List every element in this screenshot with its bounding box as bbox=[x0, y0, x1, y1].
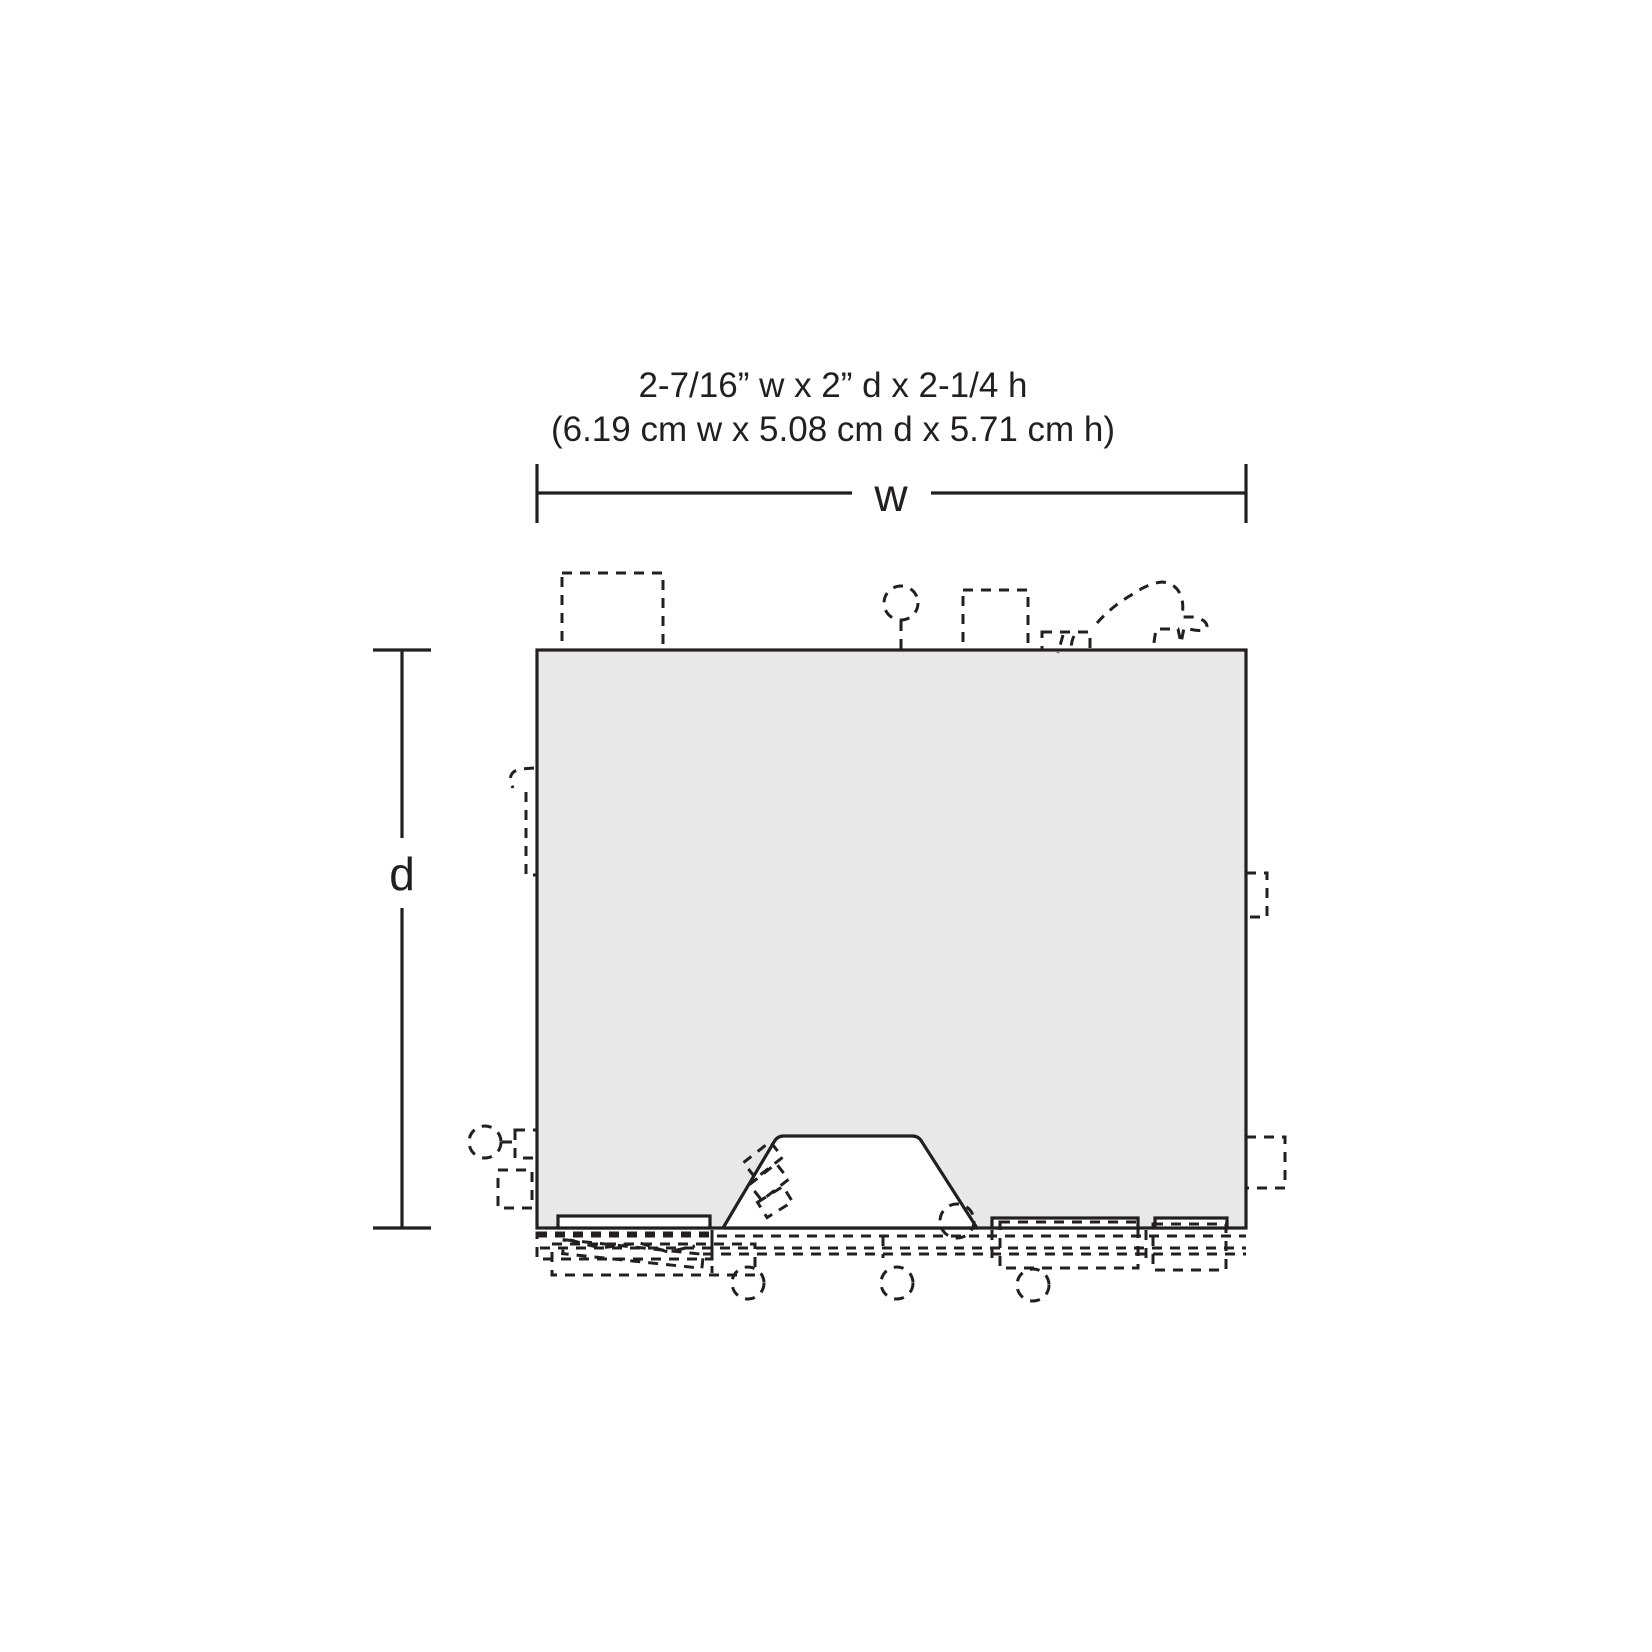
detail-outline-left-barrel bbox=[469, 1126, 501, 1158]
detail-outline-dog-figure bbox=[1097, 582, 1207, 649]
depth-dimension-label: d bbox=[389, 848, 415, 900]
detail-outline-bottom-barrel-3 bbox=[1017, 1269, 1049, 1301]
footprint-diagram: 2-7/16” w x 2” d x 2-1/4 h (6.19 cm w x … bbox=[0, 0, 1652, 1652]
detail-outline-right-crate bbox=[1246, 1137, 1285, 1188]
detail-outline-sign-head bbox=[884, 586, 918, 620]
detail-outline-top-box bbox=[963, 590, 1028, 650]
dimensions-title-line2: (6.19 cm w x 5.08 cm d x 5.71 cm h) bbox=[551, 410, 1115, 449]
dimensions-title-line1: 2-7/16” w x 2” d x 2-1/4 h bbox=[638, 366, 1027, 405]
dock-step-left bbox=[558, 1216, 710, 1228]
detail-outline-left-small-box bbox=[515, 1130, 537, 1158]
detail-outline-top-crate bbox=[562, 573, 663, 650]
detail-outline-bottom-barrel-1 bbox=[732, 1267, 764, 1299]
detail-outline-left-crate bbox=[498, 1170, 532, 1208]
width-dimension-label: w bbox=[873, 469, 908, 521]
detail-outline-left-hook bbox=[510, 768, 536, 875]
detail-outline-small-bin bbox=[1042, 632, 1090, 650]
detail-outline-right-small-box bbox=[1246, 873, 1267, 917]
depth-dimension-line bbox=[373, 650, 431, 1228]
detail-outline-bottom-barrel-2 bbox=[881, 1267, 913, 1299]
footprint-diagram-svg: 2-7/16” w x 2” d x 2-1/4 h (6.19 cm w x … bbox=[0, 0, 1652, 1652]
solid-line-layer bbox=[373, 464, 1246, 1228]
